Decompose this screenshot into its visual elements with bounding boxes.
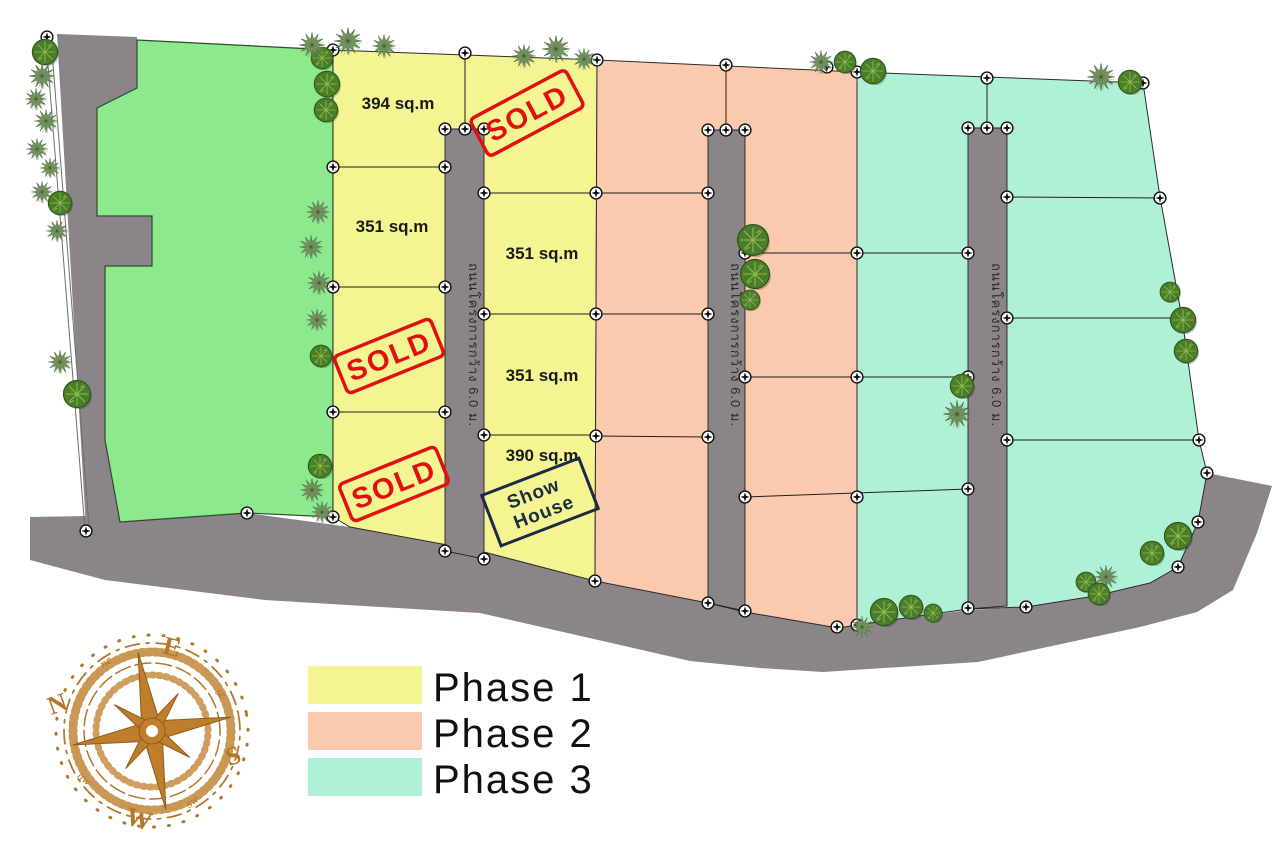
survey-marker-icon [1172,561,1184,573]
legend-item: Phase 3 [308,758,594,802]
legend-label-phase3: Phase 3 [433,758,594,802]
palm-icon [40,158,61,179]
palm-icon [25,88,48,111]
survey-marker-icon [439,545,451,557]
legend-swatch-phase3 [308,758,422,796]
survey-marker-icon [962,483,974,495]
road-3-label: ถนนโครงการกว้าง 6.0 ม. [989,263,1004,427]
survey-marker-icon [327,406,339,418]
survey-marker-icon [439,406,451,418]
survey-marker-icon [439,281,451,293]
palm-icon [26,138,49,161]
survey-marker-icon [981,72,993,84]
survey-marker-icon [1193,434,1205,446]
survey-marker-icon [478,308,490,320]
survey-marker-icon [702,308,714,320]
plot-351a-label: 351 sq.m [356,217,429,236]
survey-marker-icon [702,124,714,136]
survey-marker-icon [1001,191,1013,203]
palm-icon [48,350,73,375]
legend-item: Phase 1 [308,666,594,710]
plot-351c-label: 351 sq.m [506,366,579,385]
survey-marker-icon [1192,516,1204,528]
legend-label-phase1: Phase 1 [433,666,594,710]
plot-351b-label: 351 sq.m [506,244,579,263]
survey-marker-icon [962,122,974,134]
survey-marker-icon [478,553,490,565]
survey-marker-icon [478,429,490,441]
survey-marker-icon [590,187,602,199]
survey-marker-icon [702,597,714,609]
survey-marker-icon [851,247,863,259]
survey-marker-icon [981,122,993,134]
land-plot-site-plan: ถนนโครงการกว้าง 6.0 ม. ถนนโครงการกว้าง 6… [0,0,1280,848]
survey-marker-icon [1020,601,1032,613]
survey-marker-icon [327,161,339,173]
survey-marker-icon [1154,192,1166,204]
survey-marker-icon [478,187,490,199]
plot-394-label: 394 sq.m [362,94,435,113]
survey-marker-icon [702,187,714,199]
survey-marker-icon [962,602,974,614]
survey-marker-icon [962,247,974,259]
compass-rose: E N S W ne se sw nw [41,620,263,842]
survey-marker-icon [439,161,451,173]
common-green-area [97,40,333,522]
survey-marker-icon [851,371,863,383]
survey-marker-icon [720,59,732,71]
phase-legend: Phase 1 Phase 2 Phase 3 [308,666,594,802]
survey-marker-icon [439,123,451,135]
palm-icon [34,109,59,134]
survey-marker-icon [589,575,601,587]
survey-marker-icon [590,430,602,442]
survey-marker-icon [241,507,253,519]
legend-swatch-phase1 [308,666,422,704]
tree-icon [32,39,59,66]
legend-label-phase2: Phase 2 [433,712,594,756]
survey-marker-icon [590,308,602,320]
survey-marker-icon [831,621,843,633]
legend-item: Phase 2 [308,712,594,756]
site-plan-drawing: ถนนโครงการกว้าง 6.0 ม. ถนนโครงการกว้าง 6… [0,0,1280,848]
survey-marker-icon [720,124,732,136]
compass-north-label: N [43,687,71,721]
road-1-label: ถนนโครงการกว้าง 6.0 ม. [466,263,481,427]
survey-marker-icon [739,371,751,383]
palm-icon [29,63,56,90]
survey-marker-icon [702,431,714,443]
survey-marker-icon [739,124,751,136]
survey-marker-icon [739,605,751,617]
survey-marker-icon [1001,312,1013,324]
survey-marker-icon [851,491,863,503]
survey-marker-icon [1001,122,1013,134]
road-2-label: ถนนโครงการกว้าง 6.0 ม. [728,263,743,427]
legend-swatch-phase2 [308,712,422,750]
survey-marker-icon [459,123,471,135]
survey-marker-icon [1001,434,1013,446]
survey-marker-icon [1201,467,1213,479]
survey-marker-icon [80,525,92,537]
survey-marker-icon [459,47,471,59]
survey-marker-icon [739,491,751,503]
